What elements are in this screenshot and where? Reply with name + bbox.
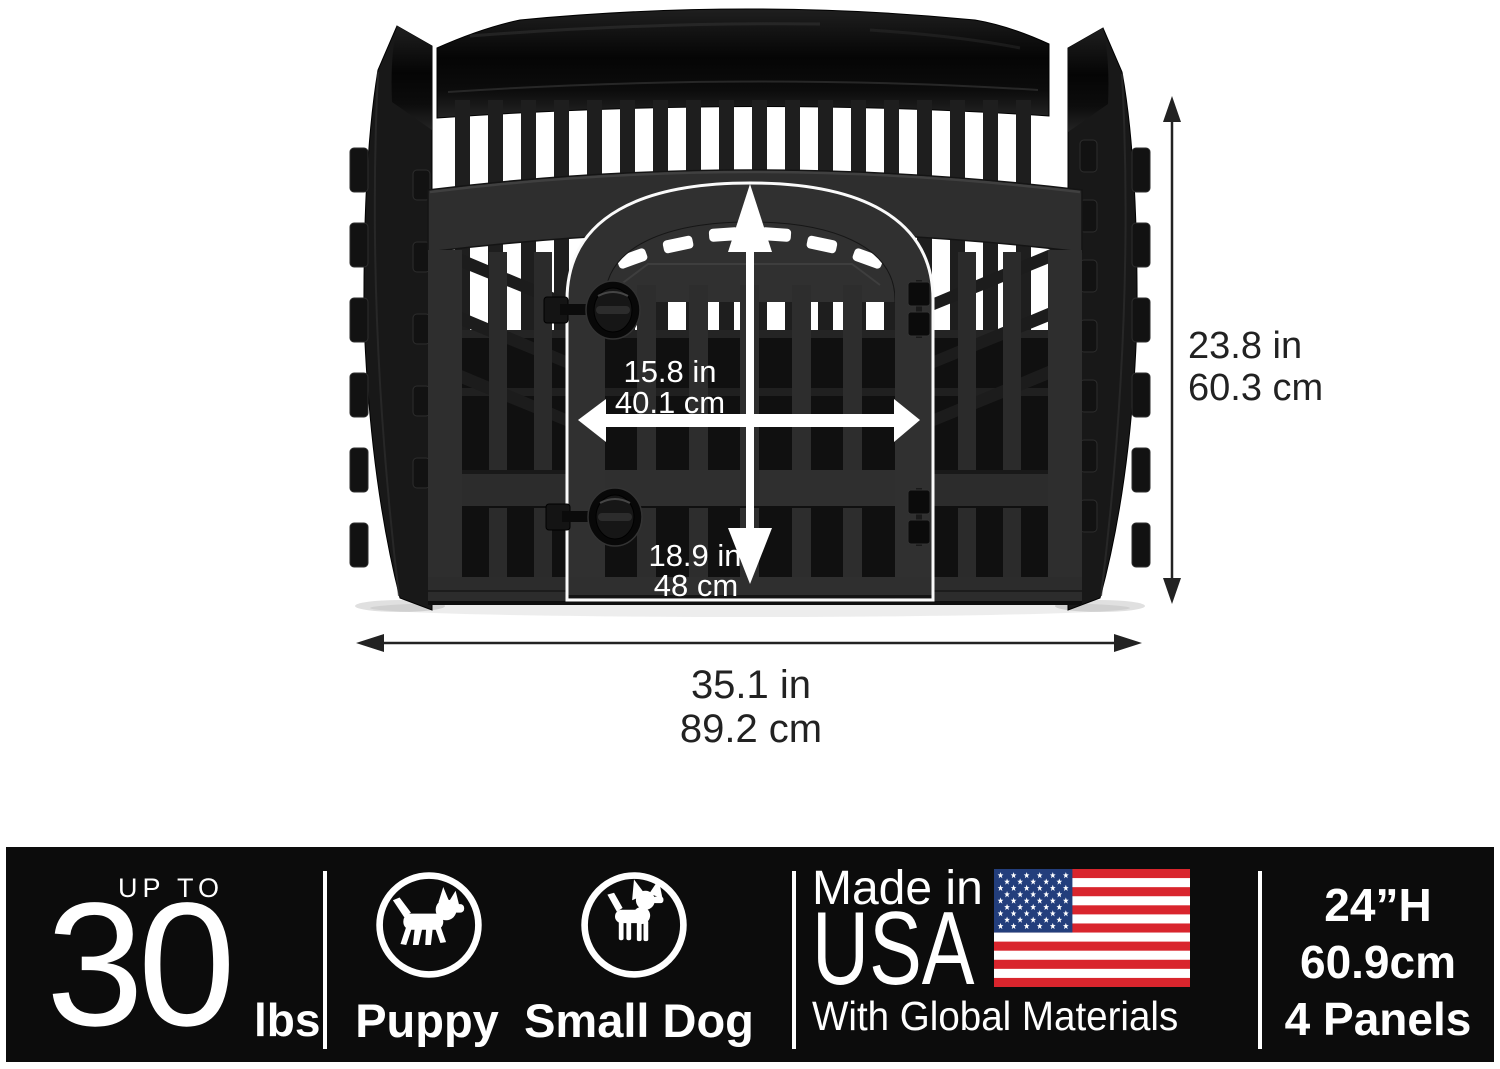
- small-dog-icon: [577, 868, 691, 982]
- weight-unit: lbs: [254, 993, 320, 1047]
- spec-height-in: 24”H: [1262, 878, 1494, 932]
- pen-height-in: 23.8 in: [1188, 325, 1302, 367]
- door-width-in: 15.8 in: [623, 354, 716, 389]
- origin-line2: USA: [812, 897, 975, 1001]
- door-latch-knob-bottom: [588, 488, 642, 546]
- pet-label-puppy: Puppy: [327, 993, 527, 1048]
- pen-height-cm: 60.3 cm: [1188, 367, 1323, 409]
- divider: [792, 871, 796, 1049]
- spec-panels: 4 Panels: [1262, 992, 1494, 1046]
- pet-playpen-diagram: 15.8 in 40.1 cm 18.9 in 48 cm 23.8 in 60…: [0, 0, 1500, 847]
- us-flag-icon: [994, 869, 1190, 987]
- left-side-panel: [350, 26, 432, 610]
- pen-width-in: 35.1 in: [691, 663, 811, 707]
- height-dimension: 23.8 in 60.3 cm: [1163, 96, 1323, 604]
- spec-height-cm: 60.9cm: [1262, 935, 1494, 989]
- product-image: 15.8 in 40.1 cm 18.9 in 48 cm 23.8 in 60…: [0, 0, 1500, 1069]
- origin-line3: With Global Materials: [812, 993, 1178, 1040]
- weight-value: 30: [46, 877, 230, 1053]
- pet-label-small-dog: Small Dog: [514, 993, 764, 1048]
- pen-width-cm: 89.2 cm: [680, 707, 822, 751]
- width-dimension: 35.1 in 89.2 cm: [356, 634, 1142, 751]
- puppy-icon: [372, 868, 486, 982]
- door-width-cm: 40.1 cm: [615, 385, 725, 420]
- door-height-cm: 48 cm: [654, 568, 738, 603]
- feature-banner: UP TO 30 lbs: [6, 847, 1494, 1062]
- door-latch-knob-top: [586, 281, 640, 339]
